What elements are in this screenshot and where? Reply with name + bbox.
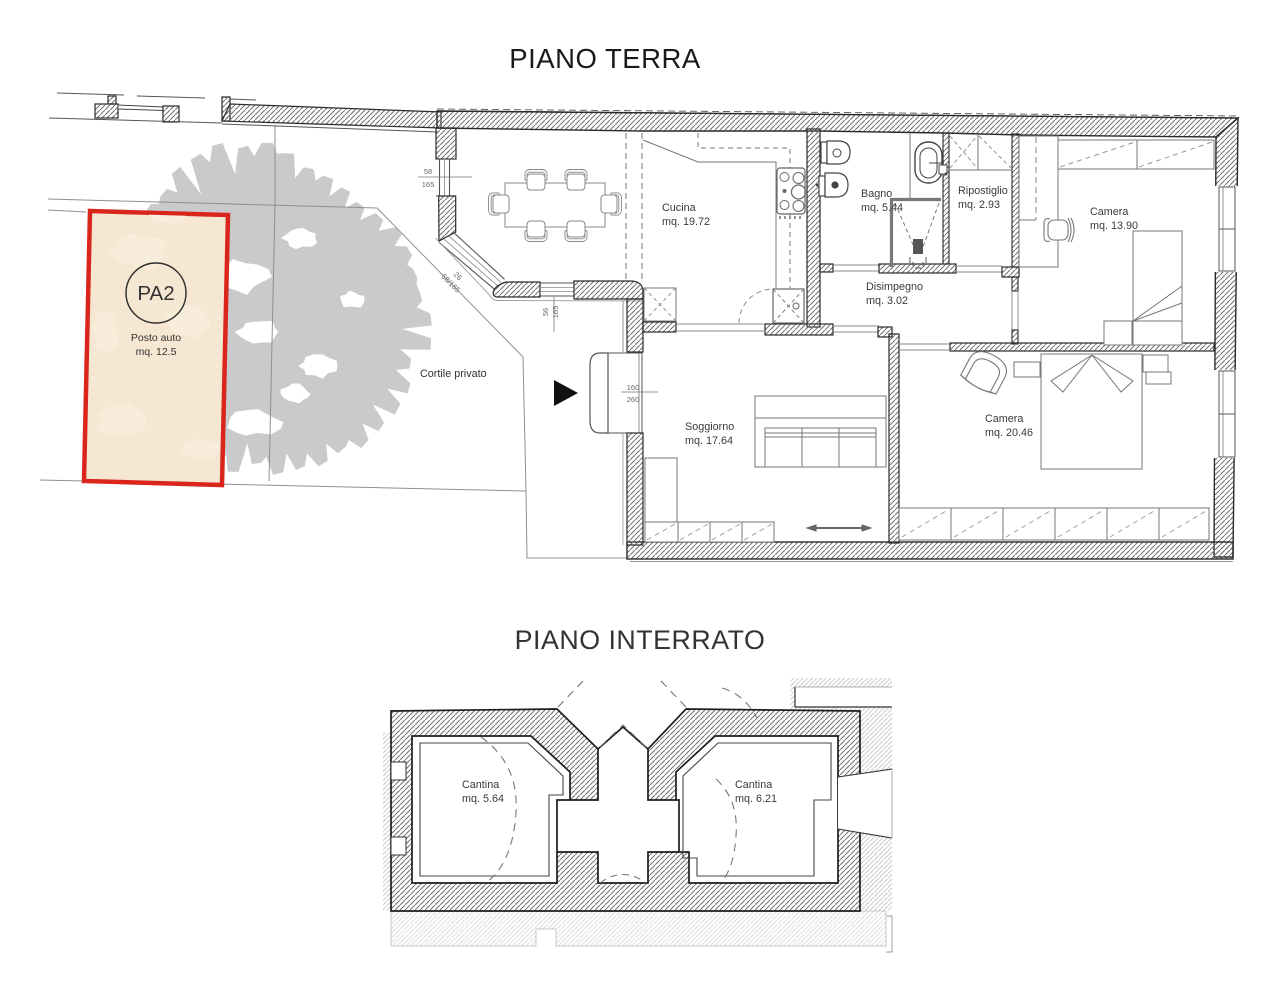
svg-text:Cucina: Cucina <box>662 202 696 214</box>
svg-text:Posto auto: Posto auto <box>131 332 181 344</box>
svg-text:Ripostiglio: Ripostiglio <box>958 185 1008 197</box>
svg-text:165: 165 <box>422 180 435 189</box>
svg-text:mq. 6.21: mq. 6.21 <box>735 793 777 805</box>
svg-text:165: 165 <box>551 306 560 319</box>
svg-text:Cortile privato: Cortile privato <box>420 368 487 380</box>
svg-text:mq. 5.44: mq. 5.44 <box>861 202 903 214</box>
svg-text:56: 56 <box>541 308 550 316</box>
svg-text:mq. 3.02: mq. 3.02 <box>866 295 908 307</box>
svg-text:PIANO INTERRATO: PIANO INTERRATO <box>515 625 766 655</box>
svg-text:mq. 19.72: mq. 19.72 <box>662 216 710 228</box>
svg-text:Soggiorno: Soggiorno <box>685 421 734 433</box>
svg-text:mq. 13.90: mq. 13.90 <box>1090 220 1138 232</box>
svg-text:Camera: Camera <box>985 413 1023 425</box>
svg-text:Cantina: Cantina <box>462 779 499 791</box>
svg-text:160: 160 <box>627 383 640 392</box>
svg-text:Cantina: Cantina <box>735 779 772 791</box>
svg-text:mq. 17.64: mq. 17.64 <box>685 435 733 447</box>
svg-text:Camera: Camera <box>1090 206 1128 218</box>
svg-text:mq. 2.93: mq. 2.93 <box>958 199 1000 211</box>
svg-text:PA2: PA2 <box>137 282 174 305</box>
svg-text:mq. 12.5: mq. 12.5 <box>136 346 177 358</box>
svg-text:Bagno: Bagno <box>861 188 892 200</box>
svg-text:58: 58 <box>424 167 432 176</box>
svg-text:mq. 5.64: mq. 5.64 <box>462 793 504 805</box>
svg-text:PIANO TERRA: PIANO TERRA <box>509 43 701 74</box>
svg-text:mq. 20.46: mq. 20.46 <box>985 427 1033 439</box>
svg-text:Disimpegno: Disimpegno <box>866 281 923 293</box>
svg-text:260: 260 <box>627 395 640 404</box>
